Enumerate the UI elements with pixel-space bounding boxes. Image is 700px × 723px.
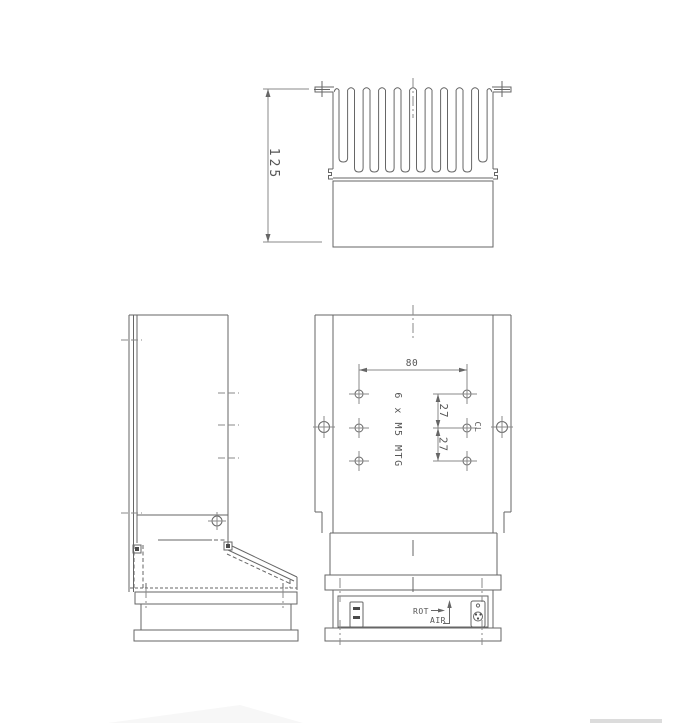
left-t-slot <box>329 169 334 179</box>
side-fan-box <box>141 604 291 630</box>
centerline-label: CL <box>473 422 482 433</box>
hidden-left-channel <box>133 545 143 588</box>
front-bottom-flange <box>325 628 501 641</box>
dim-27-lower-label: 27 <box>437 437 450 452</box>
page-artifacts <box>108 705 662 723</box>
section-duct-box <box>333 181 493 247</box>
dim-27-upper-label: 27 <box>437 403 450 418</box>
rotation-arrow <box>438 609 445 613</box>
front-view: 80 27 27 6 x M5 MTG CL <box>313 305 513 645</box>
mounting-hole <box>349 384 369 404</box>
dimension-125: 125 <box>263 89 322 242</box>
dim-125-label: 125 <box>266 148 281 180</box>
side-base-plate <box>135 592 297 604</box>
section-left-flange <box>314 81 334 97</box>
front-left-flange <box>313 315 335 533</box>
mounting-note-label: 6 x M5 MTG <box>392 392 403 467</box>
side-bottom-flange <box>134 630 298 641</box>
section-right-flange <box>492 81 511 97</box>
side-view <box>121 315 298 641</box>
mounting-hole <box>349 418 369 438</box>
rot-label: ROT <box>413 607 429 616</box>
power-connector <box>471 601 485 627</box>
mounting-hole <box>349 451 369 471</box>
dim-80-label: 80 <box>406 358 418 369</box>
front-right-flange <box>491 315 513 533</box>
technical-drawing: 125 <box>0 0 700 723</box>
drawing-sheet: 125 <box>0 0 700 723</box>
terminal-block <box>350 602 363 627</box>
rotation-airflow-annotation: ROT AIR <box>413 600 452 625</box>
dimension-27-pair: 27 27 <box>433 394 459 461</box>
airflow-up-arrow <box>447 600 451 608</box>
mounting-hole <box>457 384 477 404</box>
dimension-80: 80 <box>359 358 467 385</box>
sloped-shroud <box>227 546 297 590</box>
section-view: 125 <box>263 78 511 247</box>
mounting-hole <box>457 451 477 471</box>
right-t-slot <box>493 169 498 179</box>
